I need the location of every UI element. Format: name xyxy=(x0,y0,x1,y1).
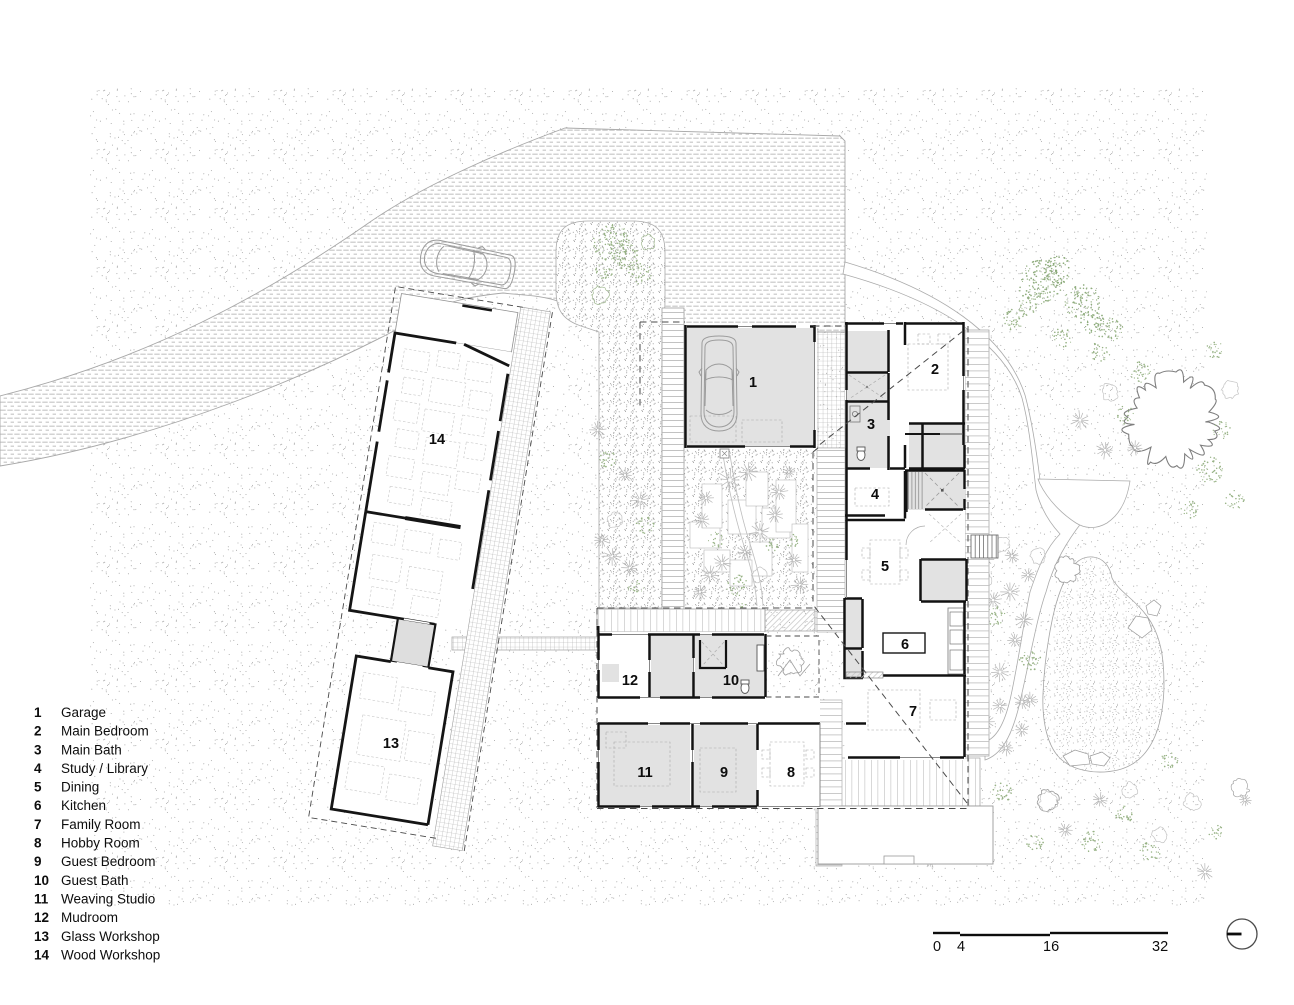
svg-text:11: 11 xyxy=(637,765,652,781)
svg-text:Guest Bedroom: Guest Bedroom xyxy=(61,854,156,869)
svg-text:10: 10 xyxy=(34,873,49,888)
svg-text:Family Room: Family Room xyxy=(61,817,141,832)
svg-text:1: 1 xyxy=(34,705,42,720)
svg-text:Weaving Studio: Weaving Studio xyxy=(61,892,155,907)
svg-text:1: 1 xyxy=(749,375,757,391)
svg-text:8: 8 xyxy=(34,836,42,851)
svg-text:Dining: Dining xyxy=(61,780,99,795)
svg-text:14: 14 xyxy=(34,948,50,963)
svg-text:4: 4 xyxy=(34,761,42,776)
svg-text:9: 9 xyxy=(34,854,42,869)
svg-text:5: 5 xyxy=(881,559,889,575)
svg-text:16: 16 xyxy=(1043,939,1059,955)
svg-text:2: 2 xyxy=(931,362,939,378)
svg-text:12: 12 xyxy=(622,673,638,689)
svg-text:7: 7 xyxy=(34,817,42,832)
svg-text:0: 0 xyxy=(933,939,941,955)
svg-text:4: 4 xyxy=(871,487,879,503)
svg-text:Glass Workshop: Glass Workshop xyxy=(61,929,160,944)
svg-text:Wood Workshop: Wood Workshop xyxy=(61,948,160,963)
svg-text:Kitchen: Kitchen xyxy=(61,798,106,813)
svg-text:Main Bedroom: Main Bedroom xyxy=(61,724,149,739)
svg-text:Study / Library: Study / Library xyxy=(61,761,148,776)
svg-text:6: 6 xyxy=(34,798,42,813)
svg-text:12: 12 xyxy=(34,910,49,925)
svg-text:11: 11 xyxy=(34,892,49,907)
svg-text:13: 13 xyxy=(34,929,50,944)
svg-text:4: 4 xyxy=(957,939,965,955)
svg-text:13: 13 xyxy=(383,736,399,752)
svg-text:7: 7 xyxy=(909,704,917,720)
svg-text:Mudroom: Mudroom xyxy=(61,910,118,925)
svg-text:5: 5 xyxy=(34,780,42,795)
svg-text:14: 14 xyxy=(429,432,445,448)
svg-text:3: 3 xyxy=(34,742,42,757)
svg-text:10: 10 xyxy=(723,673,739,689)
svg-text:Hobby Room: Hobby Room xyxy=(61,836,140,851)
svg-text:32: 32 xyxy=(1152,939,1168,955)
svg-text:2: 2 xyxy=(34,724,42,739)
svg-text:Garage: Garage xyxy=(61,705,106,720)
svg-text:Guest Bath: Guest Bath xyxy=(61,873,129,888)
svg-text:Main Bath: Main Bath xyxy=(61,742,122,757)
svg-text:3: 3 xyxy=(867,417,875,433)
svg-text:9: 9 xyxy=(720,765,728,781)
svg-text:6: 6 xyxy=(901,637,909,653)
svg-text:8: 8 xyxy=(787,765,795,781)
